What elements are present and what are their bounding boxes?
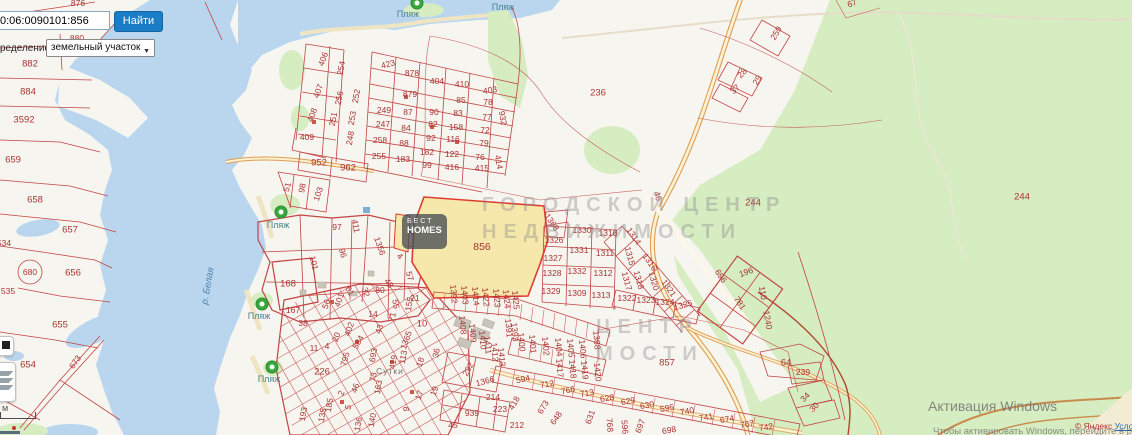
measure-tool-button[interactable] [0,336,14,356]
watermark-line: ГОРОДСКОЙ ЦЕНТР [482,192,786,219]
map-copyright: © Яндекс Усло [1075,421,1132,431]
object-type-select[interactable]: ▼ земельный участок [46,39,155,57]
watermark-line: ЦЕНТР [596,314,704,341]
square-icon [2,341,10,349]
settlement-label: Сутки [376,366,404,376]
cadastral-search-input[interactable] [0,11,110,30]
watermark-agency: ГОРОДСКОЙ ЦЕНТР НЕДВИЖИМОСТИ [482,192,786,246]
chevron-down-icon: ▼ [143,44,150,60]
best-homes-logo: БЕСТ HOMES [402,214,447,249]
scale-dot [12,426,16,430]
find-button[interactable]: Найти [114,11,163,32]
object-type-value: земельный участок [51,42,140,53]
layers-icon [0,371,11,392]
watermark-line: МОСТИ [596,341,704,368]
logo-text: БЕСТ [407,218,447,225]
watermark-line: НЕДВИЖИМОСТИ [482,219,786,246]
watermark-agency-partial: ЦЕНТР МОСТИ [596,314,704,368]
map-viewport[interactable]: 8768808828843592659658657534680535656655… [0,0,1132,435]
scale-bar [0,412,36,419]
logo-text: HOMES [407,225,447,236]
filter-label: ределение: [0,43,53,54]
layers-button[interactable] [0,362,16,402]
yandex-copyright: © Яндекс [1075,421,1112,431]
windows-activation-title: Активация Windows [928,398,1057,414]
terms-link[interactable]: Усло [1115,421,1132,431]
scale-mark [0,431,20,434]
